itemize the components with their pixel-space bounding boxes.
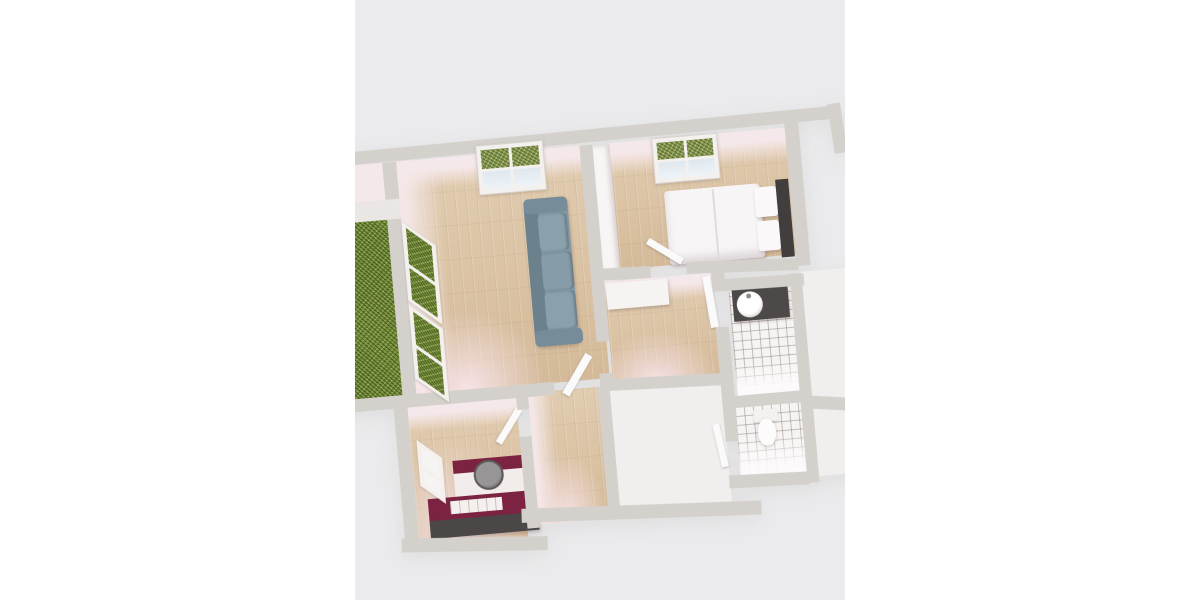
bedroom-bottom-wall — [686, 258, 798, 274]
pillow — [757, 220, 782, 252]
wc-bottom-wall — [729, 471, 810, 488]
bed — [664, 179, 796, 268]
pillow — [754, 186, 779, 218]
sofa-cushion — [544, 290, 578, 331]
bathroom-vanity — [732, 285, 791, 322]
toilet — [753, 408, 780, 448]
window-pane-greenery — [686, 138, 714, 157]
window-pane-greenery — [480, 148, 509, 169]
window-mullion — [409, 264, 435, 286]
window-pane-greenery — [511, 145, 540, 166]
hallway-sideboard — [606, 279, 670, 310]
window-pane-greenery — [656, 141, 684, 160]
window-pane-sky — [658, 160, 686, 179]
toilet-bowl — [757, 418, 777, 446]
window-pane-sky — [688, 158, 716, 177]
sofa-cushion — [541, 251, 575, 292]
window-pane-sky — [513, 167, 542, 188]
kitchen-bottom-wall — [402, 536, 548, 553]
unfurnished-area — [610, 379, 732, 513]
render-viewport[interactable] — [355, 0, 845, 600]
corridor-left-wall — [516, 395, 529, 410]
bedroom-window — [651, 133, 721, 185]
window-mullion — [416, 345, 442, 367]
exterior-right-wall — [827, 102, 845, 153]
window-pane-sky — [482, 169, 511, 190]
living-room-window — [475, 140, 547, 196]
page — [0, 0, 1200, 600]
window-mullion — [423, 466, 440, 482]
sofa-cushion — [537, 212, 569, 252]
